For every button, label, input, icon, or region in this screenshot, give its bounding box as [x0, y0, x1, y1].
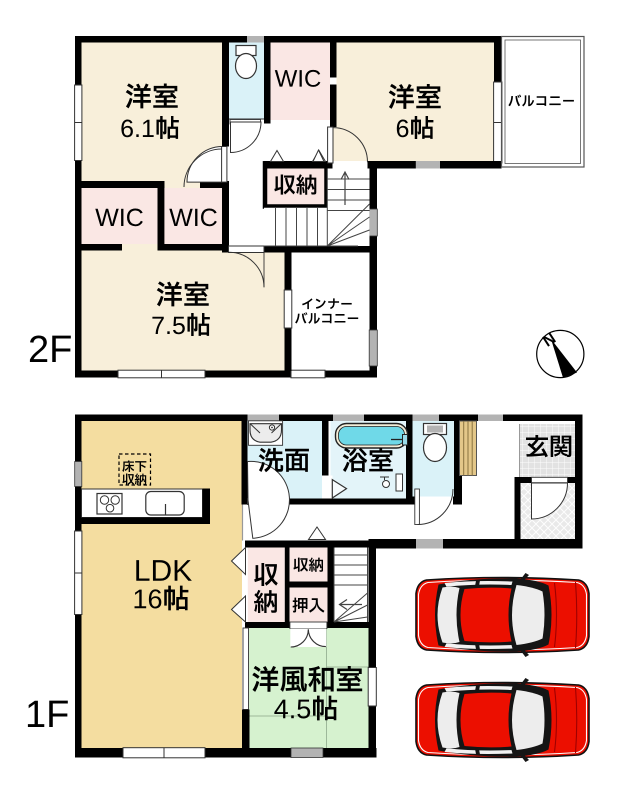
svg-text:1F: 1F [25, 694, 69, 736]
svg-text:2F: 2F [28, 329, 72, 371]
